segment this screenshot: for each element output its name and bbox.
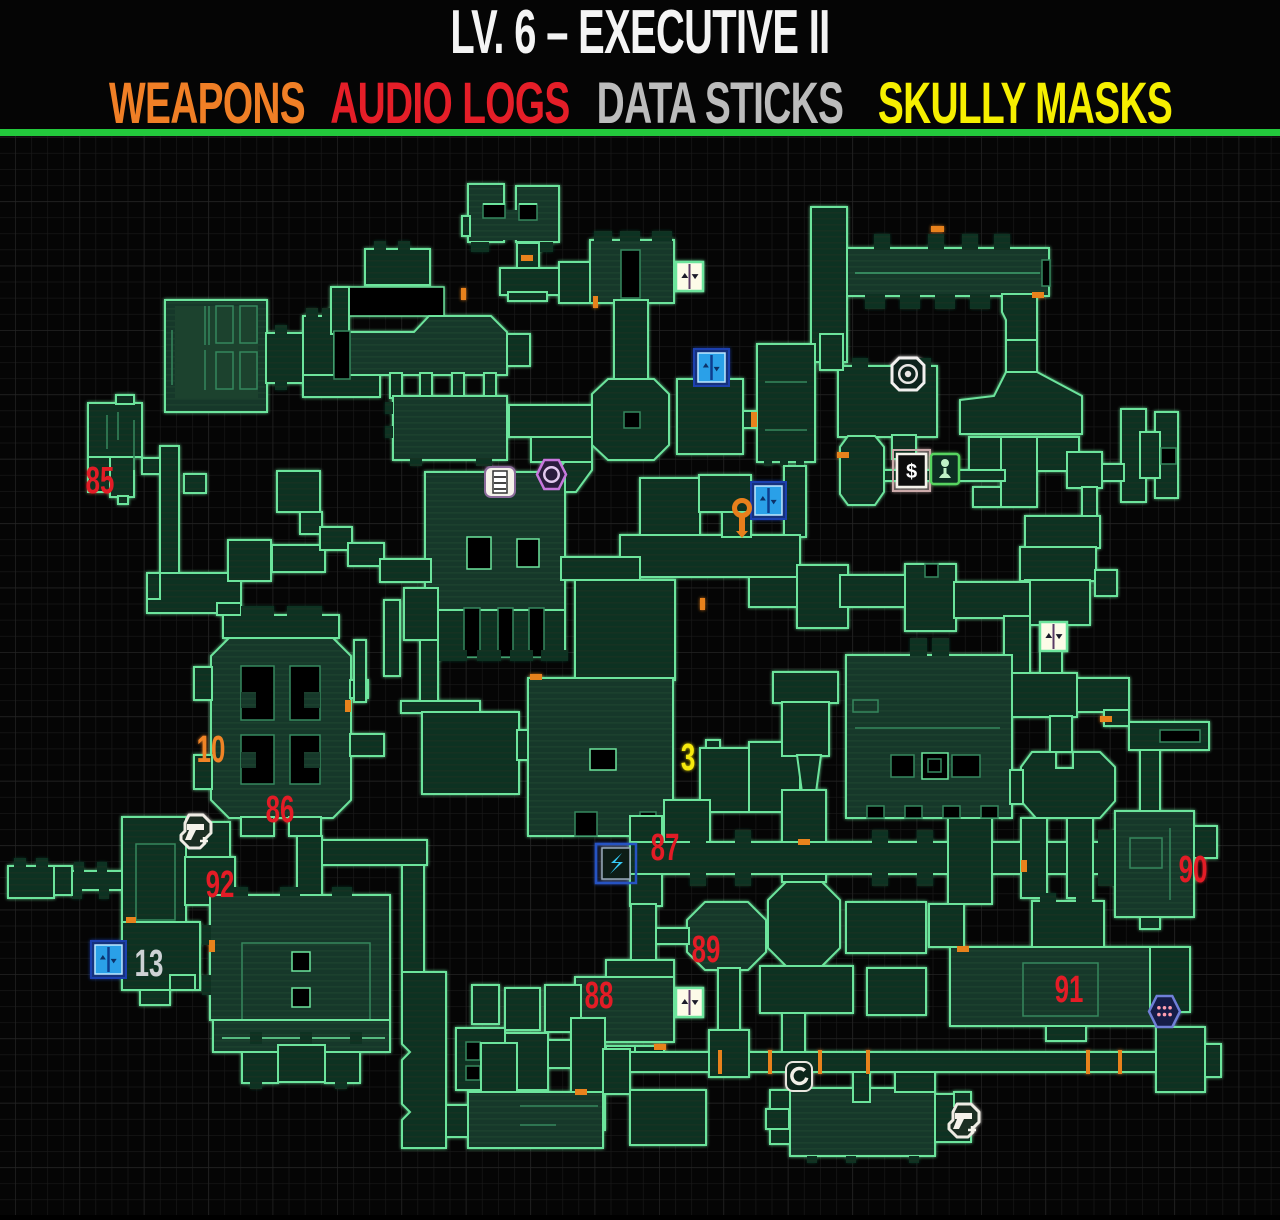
svg-text:89: 89	[692, 928, 721, 970]
svg-text:AUDIO LOGS: AUDIO LOGS	[330, 71, 569, 136]
svg-text:86: 86	[266, 788, 295, 830]
svg-text:85: 85	[86, 459, 115, 501]
svg-text:13: 13	[135, 942, 164, 984]
svg-text:SKULLY MASKS: SKULLY MASKS	[878, 71, 1172, 136]
svg-text:3: 3	[681, 736, 695, 778]
svg-text:LV. 6 – EXECUTIVE II: LV. 6 – EXECUTIVE II	[450, 0, 829, 67]
svg-text:87: 87	[651, 826, 680, 868]
svg-text:WEAPONS: WEAPONS	[109, 71, 305, 136]
svg-text:91: 91	[1055, 968, 1084, 1010]
svg-text:10: 10	[197, 728, 226, 770]
svg-text:$: $	[906, 461, 917, 483]
svg-text:92: 92	[206, 863, 235, 905]
svg-text:DATA STICKS: DATA STICKS	[597, 71, 844, 136]
svg-text:90: 90	[1179, 848, 1208, 890]
svg-text:88: 88	[585, 974, 614, 1016]
